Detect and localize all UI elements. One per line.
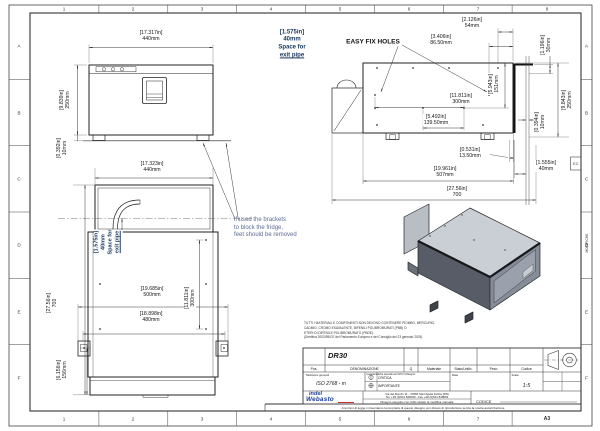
dim-side-hole-a: [2.126in]54mm: [461, 17, 483, 29]
drawing-sheet: 1 2 3 4 5 6 7 8 1 2 3 4 5 6 7 A3 A B C D…: [0, 0, 600, 431]
front-panel: [90, 377, 215, 395]
foot: [197, 135, 209, 141]
grid-row-label: F: [18, 376, 21, 381]
sheet-frame: [9, 5, 592, 426]
dim-side-foot-offset: [0.531in]13.50mm: [458, 146, 482, 158]
modifiche-label: MODIFICHE: [585, 233, 589, 252]
tolerance-value: ISO 2768 - m: [316, 381, 346, 387]
dim-side-hole-b: [3.406in]86.50mm: [429, 33, 453, 45]
easy-fix-holes-label: EASY FIX HOLES: [346, 38, 400, 45]
dim-side-depth: [19.961in]507mm: [433, 165, 458, 177]
scale-value: 1:5: [523, 383, 531, 389]
header-denominazione: DENOMINAZIONE: [350, 367, 379, 371]
grid-row-label: A: [585, 44, 588, 49]
grid-row-label: E: [17, 309, 20, 314]
dim-front-width: [17.317in]440mm: [139, 30, 164, 42]
ec-label: EC: [573, 162, 578, 166]
grid-col-label: 6: [408, 416, 411, 421]
dim-side-hole-span: [11.811in]300mm: [449, 92, 473, 104]
grid-col-label: 1: [63, 416, 66, 421]
front-view: [74, 45, 239, 221]
cad-note: Disegno eseguito con CAD vietato la modi…: [380, 400, 453, 404]
grid-row-label: C: [17, 177, 20, 182]
grid-col-label: 5: [339, 416, 342, 421]
foot: [386, 133, 399, 140]
header-q: Q: [410, 367, 413, 371]
critical-label: CRITICA: [378, 376, 392, 380]
dim-side-height: [9.843in]250mm: [560, 89, 572, 111]
logo-red-accent: [338, 402, 354, 404]
legal-note: A termini di legge ci riserviamo la prop…: [342, 406, 505, 410]
grid-row-label: A: [17, 44, 20, 49]
dim-top-front-depth: [6.156in]156mm: [56, 359, 68, 381]
grid-row-label: E: [585, 309, 588, 314]
drawing-linework: [0, 0, 600, 431]
dim-front-height: [9.839in]250mm: [59, 89, 71, 111]
company-logo: indel Webasto: [306, 392, 334, 404]
dim-top-bracket-width: [19.685in]500mm: [140, 285, 165, 297]
grid-row-label: B: [17, 110, 20, 115]
dim-side-total-depth: [27.56in]700: [446, 185, 468, 197]
rear-section: [95, 185, 213, 232]
header-pos: Pos.: [311, 367, 318, 371]
space-note: [1.575in] 40mm Space for exit pipe: [278, 29, 305, 60]
iso-view: [404, 204, 540, 323]
header-materiale: Materiale: [427, 367, 441, 371]
dim-top-width: [17.323in]440mm: [140, 161, 165, 173]
grid-col-label: 8: [546, 7, 549, 12]
foot: [481, 133, 494, 140]
tolerance-label: Tolleranze generali: [306, 373, 329, 377]
grid-row-label: F: [585, 376, 588, 381]
grid-col-label: 2: [132, 7, 135, 12]
sheet-format: A3: [544, 416, 551, 422]
grid-col-label: 4: [270, 7, 273, 12]
company-address-2: Tel. +39 (0)541 848030 - Fax +39 (0)541 …: [386, 395, 449, 399]
iso-foot: [465, 312, 473, 323]
header-codice: Codice: [521, 367, 532, 371]
grid-row-label: B: [585, 110, 588, 115]
handle: [143, 78, 167, 104]
grid-col-label: 5: [339, 7, 342, 12]
grid-col-label: 7: [477, 416, 480, 421]
projection-symbol: [544, 351, 579, 370]
rohs-note: TUTTI I MATERIALI E COMPONENTI NON DEVON…: [304, 321, 435, 340]
drawing-title: DR30: [328, 351, 347, 360]
grid-col-label: 1: [63, 7, 66, 12]
dim-side-rear-space: [1.555in]40mm: [535, 160, 557, 172]
mounting-bracket: [515, 65, 534, 134]
dim-top-total-depth: [27.56in]700: [46, 292, 58, 314]
grid-col-label: 2: [132, 416, 135, 421]
important-label: IMPORTANTE: [378, 384, 400, 388]
scale-label: Scala: [512, 373, 519, 377]
dim-top-bracket-width2: [18.898in]480mm: [139, 311, 164, 323]
dim-side-hole-span2: [5.492in]139.50mm: [423, 113, 450, 125]
control-panel: [96, 67, 136, 72]
dim-side-top-gap: [1.196in]30mm: [539, 34, 551, 56]
grid-col-label: 6: [408, 7, 411, 12]
iso-foot: [430, 301, 438, 312]
top-view: [58, 168, 252, 397]
foot: [93, 135, 105, 141]
dim-side-hole-height: [5.943in]151mm: [488, 73, 500, 95]
grid-col-label: 7: [477, 7, 480, 12]
dim-top-hole-span: [11.811in]300mm: [184, 286, 196, 310]
grid-col-label: 4: [270, 416, 273, 421]
header-stato: Stato/Unific.: [454, 367, 472, 371]
grid-row-label: D: [17, 243, 20, 248]
grid-col-label: 3: [201, 7, 204, 12]
space-note-rotated: [1.575in] 40mm Space for exit pipe: [94, 229, 123, 254]
grid-row-label: C: [585, 177, 588, 182]
header-peso: Peso: [490, 367, 498, 371]
date-label: Data: [452, 373, 458, 377]
bracket-note: if used the brackets to block the fridge…: [234, 217, 297, 240]
important-icon: [369, 383, 373, 387]
codice-label: CODICE: [476, 399, 492, 404]
dim-side-wall: [0.394in]10mm: [534, 111, 546, 133]
dim-front-foot: [0.392in]10mm: [56, 137, 68, 159]
grid-col-label: 3: [201, 416, 204, 421]
